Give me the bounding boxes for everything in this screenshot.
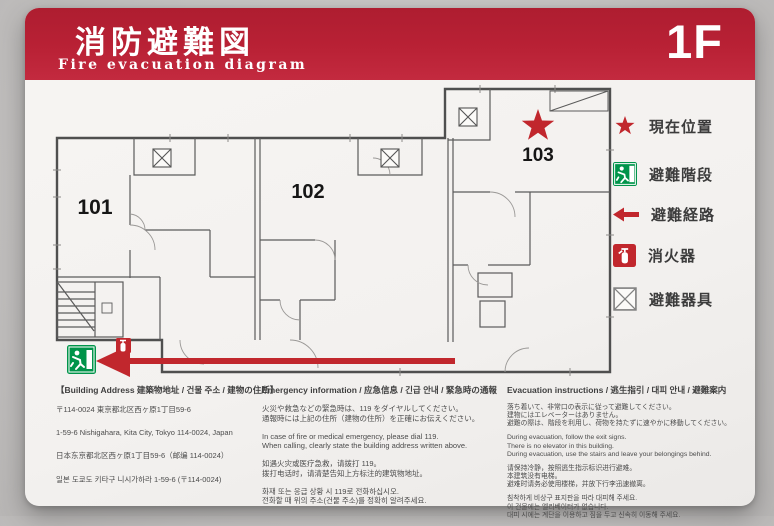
outer-walls (57, 89, 610, 372)
evacuation-paragraph-en: During evacuation, follow the exit signs… (507, 434, 747, 458)
text-line: 침착하게 비상구 표지판을 따라 대피해 주세요. (507, 495, 747, 503)
evacuation-instructions-heading: Evacuation instructions / 逃生指引 / 대피 안내 /… (507, 384, 747, 396)
floor-label: 1F (666, 14, 723, 69)
sign-title-japanese: 消防避難図 (75, 17, 255, 62)
legend-item-evacuation-route: 避難経路 (613, 204, 715, 225)
legend-item-current-location: 現在位置 (613, 115, 713, 137)
address-line-en: 1-59-6 Nishigahara, Kita City, Tokyo 114… (56, 428, 251, 437)
address-line-zh: 日本东京都北区西ヶ原1丁目59-6（邮编 114-0024） (56, 450, 251, 461)
evacuation-route-arrow-icon (613, 207, 639, 222)
legend-label: 現在位置 (649, 116, 713, 137)
building-address-section: 【Building Address 建築物地址 / 건물 주소 / 建物の住所】… (56, 384, 251, 498)
sign-title-english: Fire evacuation diagram (58, 57, 307, 73)
exit-sign-marker (67, 345, 96, 374)
emergency-information-heading: Emergency information / 应急信息 / 긴급 안내 / 緊… (262, 384, 500, 396)
text-line: 落ち着いて、非常口の表示に従って避難してください。 (507, 404, 747, 412)
evacuation-paragraph-ja: 落ち着いて、非常口の表示に従って避難してください。 建物にはエレベーターはありま… (507, 404, 747, 428)
text-line: 如遇火灾或医疗急救，请拨打 119。 (262, 459, 500, 469)
text-line: During evacuation, use the stairs and le… (507, 451, 747, 459)
text-line: When calling, clearly state the building… (262, 441, 500, 451)
evacuation-paragraph-ko: 침착하게 비상구 표지판을 따라 대피해 주세요. 이 건물에는 엘리베이터가 … (507, 495, 747, 519)
text-line: 火災や救急などの緊急時は、119 をダイヤルしてください。 (262, 404, 500, 414)
legend-label: 避難階段 (649, 164, 713, 185)
address-line-ja: 〒114-0024 東京都北区西ヶ原1丁目59-6 (56, 404, 251, 415)
text-line: There is no elevator in this building. (507, 443, 747, 451)
fire-extinguisher-icon (613, 244, 636, 267)
photo-of-sign: { "header": { "title_ja": "消防避難図", "titl… (0, 0, 774, 516)
emergency-information-section: Emergency information / 应急信息 / 긴급 안내 / 緊… (262, 384, 500, 514)
evacuation-paragraph-zh: 请保持冷静，按照逃生指示标识进行避难。 本建筑没有电梯。 避难时请务必使用楼梯，… (507, 465, 747, 489)
text-line: 避难时请务必使用楼梯，并放下行李迅速撤离。 (507, 481, 747, 489)
current-location-star-icon (613, 115, 637, 137)
legend-label: 消火器 (648, 245, 696, 266)
text-line: 通報時には上記の住所（建物の住所）を正確にお伝えください。 (262, 414, 500, 424)
text-line: 화재 또는 응급 상황 시 119로 전화하십시오. (262, 487, 500, 497)
emergency-paragraph-ja: 火災や救急などの緊急時は、119 をダイヤルしてください。 通報時には上記の住所… (262, 404, 500, 424)
legend-item-fire-extinguisher: 消火器 (613, 244, 696, 267)
legend-label: 避難器具 (649, 289, 713, 310)
building-address-heading: 【Building Address 建築物地址 / 건물 주소 / 建物の住所】 (56, 384, 251, 396)
text-line: During evacuation, follow the exit signs… (507, 434, 747, 442)
address-line-ko: 일본 도쿄도 키타구 니시가하라 1-59-6 (〒114-0024) (56, 474, 251, 485)
text-line: 전화할 때 위의 주소(건물 주소)를 정확히 알려주세요. (262, 496, 500, 506)
evacuation-stairs-icon (613, 162, 637, 186)
floor-plan: 101 102 103 (50, 85, 650, 385)
sign-header: 消防避難図 Fire evacuation diagram 1F (25, 8, 755, 80)
current-location-star-marker (522, 109, 554, 140)
evacuation-sign-panel: 消防避難図 Fire evacuation diagram 1F (25, 8, 755, 506)
emergency-paragraph-zh: 如遇火灾或医疗急救，请拨打 119。 拨打电话时，请清楚告知上方标注的建筑物地址… (262, 459, 500, 479)
emergency-paragraph-ko: 화재 또는 응급 상황 시 119로 전화하십시오. 전화할 때 위의 주소(건… (262, 487, 500, 507)
legend-label: 避難経路 (651, 204, 715, 225)
emergency-paragraph-en: In case of fire or medical emergency, pl… (262, 432, 500, 452)
room-label-103: 103 (522, 145, 554, 166)
text-line: 请保持冷静，按照逃生指示标识进行避难。 (507, 465, 747, 473)
room-label-102: 102 (291, 181, 324, 203)
equipment-box-101 (153, 149, 171, 167)
fire-extinguisher-marker (116, 338, 131, 353)
equipment-box-102 (381, 149, 399, 167)
equipment-box-103 (459, 108, 477, 126)
evacuation-equipment-icon (613, 287, 637, 311)
legend-item-evacuation-stairs: 避難階段 (613, 162, 713, 186)
text-line: 이 건물에는 엘리베이터가 없습니다. (507, 504, 747, 512)
text-line: 拨打电话时，请清楚告知上方标注的建筑物地址。 (262, 469, 500, 479)
text-line: In case of fire or medical emergency, pl… (262, 432, 500, 442)
door-arcs (130, 158, 529, 372)
interior-walls (57, 89, 610, 342)
text-line: 避難の際は、階段を利用し、荷物を持たずに速やかに移動してください。 (507, 420, 747, 428)
legend-item-evacuation-equipment: 避難器具 (613, 287, 713, 311)
room-label-101: 101 (77, 196, 112, 219)
evacuation-instructions-section: Evacuation instructions / 逃生指引 / 대피 안내 /… (507, 384, 747, 526)
